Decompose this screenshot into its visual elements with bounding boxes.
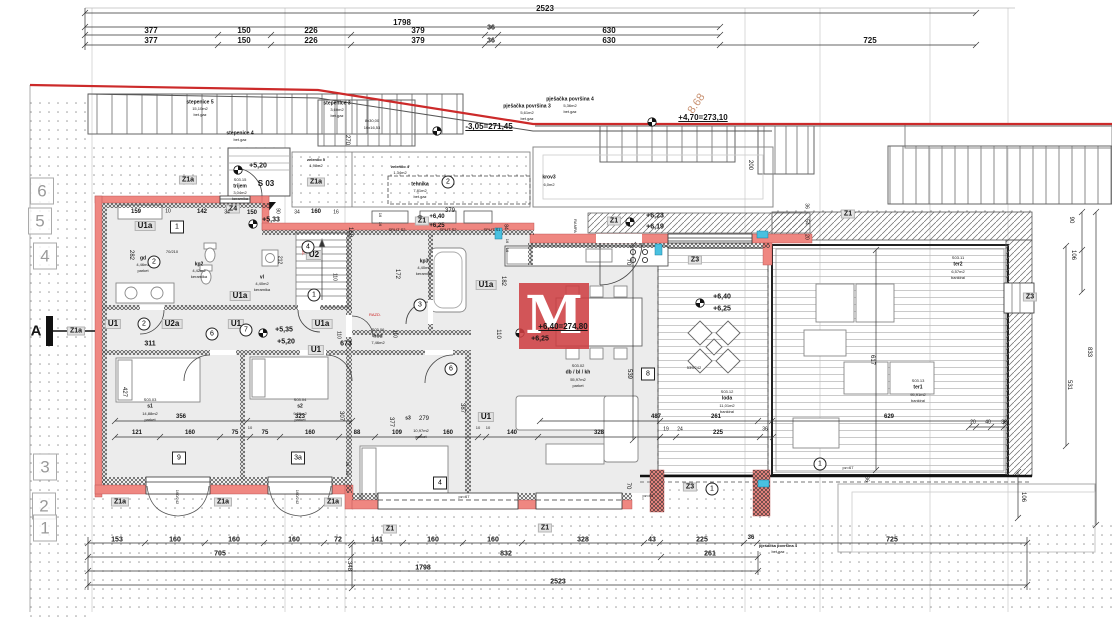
plan-label: keramika xyxy=(416,272,432,276)
plan-label: parket xyxy=(572,384,583,388)
plan-label: bet.gaz xyxy=(413,195,426,199)
plan-label: bet.gaz xyxy=(520,117,533,121)
plan-label: 725 xyxy=(886,537,898,544)
plan-label: 160 xyxy=(288,537,300,544)
reference-bubble: 2 xyxy=(148,256,161,269)
plan-label: RAZD. xyxy=(369,313,381,317)
plan-label: U2a xyxy=(162,319,183,329)
plan-label: U1 xyxy=(308,345,324,355)
plan-label: 140 xyxy=(507,430,517,436)
plan-label: bet.gaz xyxy=(330,114,343,118)
plan-label: 200 xyxy=(747,160,753,170)
reference-bubble: 1 xyxy=(308,289,321,302)
plan-label: zelenilo 4 xyxy=(391,165,409,169)
level-label: -3,05=271,45 xyxy=(465,123,512,131)
plan-label: 630 xyxy=(602,27,615,35)
plan-label: 36 xyxy=(748,535,755,541)
plan-label: 270 xyxy=(344,135,350,145)
plan-label: 153 xyxy=(111,537,123,544)
plan-label: Z1a xyxy=(179,176,197,185)
plan-label: 705 xyxy=(214,551,226,558)
plan-label: 4,42m2 xyxy=(192,269,205,273)
plan-label: +6,25 xyxy=(713,306,731,313)
plan-label: S03.06 xyxy=(372,328,385,332)
plan-label: 110 xyxy=(332,273,337,281)
plan-label: stepenice 4 xyxy=(226,132,253,137)
reference-bubble: 7 xyxy=(240,324,253,337)
plan-label: 311 xyxy=(144,341,155,348)
reference-bubble: 4 xyxy=(302,241,315,254)
plan-label: 225 xyxy=(696,537,708,544)
plan-label: 356 xyxy=(176,414,186,420)
plan-label: 110 xyxy=(336,331,341,339)
plan-label: U1a xyxy=(230,291,251,301)
reference-bubble: 6 xyxy=(445,363,458,376)
plan-label: 328 xyxy=(577,537,589,544)
plan-label: 6,57m2 xyxy=(951,270,964,274)
grid-axis-mark: 3 xyxy=(33,454,57,481)
plan-label: 226 xyxy=(304,27,317,35)
plan-label: 225 xyxy=(713,430,723,436)
plan-label: 106 xyxy=(1070,250,1076,260)
plan-label: 160 xyxy=(228,537,240,544)
plan-number: S 03 xyxy=(258,180,274,188)
plan-label: 110 xyxy=(495,329,501,339)
plan-label: 3,60m2 xyxy=(330,108,343,112)
plan-label: gd xyxy=(140,257,146,262)
plan-label: Z1a xyxy=(67,327,85,336)
plan-label: 617 xyxy=(869,355,875,365)
plan-label: 34 xyxy=(294,211,300,216)
plan-label: 487 xyxy=(651,414,661,420)
plan-label: 36 xyxy=(864,476,869,482)
plan-label: Z1 xyxy=(538,524,552,533)
plan-label: 261 xyxy=(711,414,721,420)
plan-label: pz=67 xyxy=(642,494,653,498)
reference-bubble: 6 xyxy=(206,328,219,341)
plan-label: 106 xyxy=(1020,492,1026,502)
plan-label: +6,25 xyxy=(531,336,549,343)
plan-label: 15,10m2 xyxy=(192,107,208,111)
plan-label: pješačka površina 3 xyxy=(503,105,551,110)
plan-label: 8x30,00 xyxy=(365,119,379,123)
plan-label: 10,97m2 xyxy=(413,429,429,433)
plan-label: S03.11 xyxy=(952,256,964,260)
plan-label: +5,33 xyxy=(262,217,280,224)
plan-label: Z1a xyxy=(324,498,342,507)
plan-label: 54 xyxy=(804,219,809,225)
plan-label: bet.gaz xyxy=(193,113,206,117)
plan-label: 160/242 xyxy=(175,490,179,504)
grid-axis-mark: 6 xyxy=(30,178,54,205)
plan-label: ter2 xyxy=(953,263,962,268)
plan-label: bankirai xyxy=(951,276,965,280)
plan-label: 160 xyxy=(443,430,453,436)
plan-label: +5,35 xyxy=(275,327,293,334)
plan-label: S03.13 xyxy=(912,379,925,383)
plan-label: 673 xyxy=(340,341,352,348)
plan-label: kp2 xyxy=(195,263,204,268)
plan-label: parket xyxy=(415,435,426,439)
plan-label: S03.04 xyxy=(294,398,307,402)
plan-label: 20 xyxy=(970,421,976,426)
element-tag: 3a xyxy=(291,452,305,465)
plan-label: SPLIT S1 xyxy=(483,228,500,232)
element-tag: 4 xyxy=(433,477,447,490)
grid-axis-mark: 1 xyxy=(33,515,57,542)
plan-label: 282 xyxy=(128,250,134,260)
plan-label: 70 xyxy=(625,483,631,490)
plan-label: 377 xyxy=(144,37,157,45)
plan-label: 307 xyxy=(338,411,344,421)
plan-label: 36 xyxy=(487,38,495,45)
plan-label: 34 xyxy=(224,211,230,216)
plan-label: 160/242 xyxy=(295,490,299,504)
plan-label: 20 xyxy=(804,234,809,240)
plan-label: S03.15 xyxy=(234,178,247,182)
plan-label: s2 xyxy=(297,405,303,410)
plan-label: 121 xyxy=(132,430,142,436)
plan-label: bankirai xyxy=(911,399,925,403)
plan-label: 212 xyxy=(277,256,282,264)
plan-label: 160 xyxy=(487,537,499,544)
element-tag: 8 xyxy=(641,368,655,381)
plan-label: 160 xyxy=(427,537,439,544)
plan-label: pješačka površina 4 xyxy=(759,544,797,548)
plan-label: 3,04m2 xyxy=(233,191,246,195)
plan-label: 2523 xyxy=(550,579,566,586)
plan-label: bet.gaz xyxy=(233,138,246,142)
plan-label: 36 xyxy=(762,428,768,433)
plan-label: 36 xyxy=(804,203,809,209)
plan-label: 150 xyxy=(247,210,257,216)
plan-label: U1a xyxy=(312,319,333,329)
plan-label: RAMPA xyxy=(573,219,577,233)
plan-label: pješačka površina 4 xyxy=(546,98,594,103)
plan-label: 141 xyxy=(371,537,383,544)
reference-bubble: 1 xyxy=(706,483,719,496)
level-label: +4,70=273,10 xyxy=(678,114,727,122)
plan-label: 36 xyxy=(1001,421,1007,426)
plan-label: 5,36m2 xyxy=(563,104,576,108)
plan-label: vl xyxy=(260,276,264,281)
plan-label: 182 xyxy=(500,276,506,286)
plan-label: SPLIT S2 xyxy=(439,228,456,232)
plan-label: 159 xyxy=(131,209,141,215)
plan-label: trijem xyxy=(233,185,247,190)
plan-label: +6,40 xyxy=(713,294,731,301)
floorplan-canvas: M 25231798377150226379366303771502263793… xyxy=(0,0,1112,638)
plan-label: Z3 xyxy=(1023,293,1037,302)
plan-label: loda xyxy=(722,397,732,402)
plan-label: Z1a xyxy=(111,498,129,507)
plan-label: 14,88m2 xyxy=(142,412,158,416)
grid-axis-mark: 5 xyxy=(28,208,52,235)
plan-label: parket xyxy=(137,269,148,273)
plan-label: 377 xyxy=(144,27,157,35)
plan-label: 379 xyxy=(445,208,455,214)
plan-label: Z1 xyxy=(415,217,429,226)
plan-label: 630 xyxy=(602,37,615,45)
plan-label: 90 xyxy=(1068,217,1074,224)
plan-label: 10 xyxy=(248,426,252,430)
plan-label: U1 xyxy=(105,319,121,329)
plan-label: 55,97m2 xyxy=(570,378,586,382)
plan-label: 16 xyxy=(345,471,349,475)
plan-label: 16 xyxy=(378,222,382,226)
plan-label: Z3 xyxy=(688,256,702,265)
plan-label: 261 xyxy=(704,551,716,558)
plan-label: 10 xyxy=(165,210,171,215)
plan-label: Z1 xyxy=(383,525,397,534)
plan-label: 160 xyxy=(185,430,195,436)
plan-label: Z3 xyxy=(683,483,697,492)
plan-label: bet.gaz xyxy=(771,550,784,554)
plan-label: keramika xyxy=(254,288,270,292)
plan-label: 90 xyxy=(275,208,280,214)
plan-label: stepenice 3 xyxy=(323,102,350,107)
element-tag: 9 xyxy=(172,452,186,465)
plan-label: Z1a xyxy=(307,178,325,187)
plan-label: 11,01m2 xyxy=(719,404,734,408)
plan-label: 16 xyxy=(505,239,509,243)
plan-label: 36 xyxy=(487,25,495,32)
reference-bubble: 1 xyxy=(814,458,827,471)
plan-label: bet.gaz xyxy=(563,110,576,114)
plan-label: 387 xyxy=(459,403,465,413)
plan-label: 160 xyxy=(347,227,353,237)
plan-label: 10x16,53 xyxy=(364,126,380,130)
plan-label: 110 xyxy=(392,330,397,338)
plan-label: 1798 xyxy=(415,565,431,572)
plan-label: 629 xyxy=(884,414,894,420)
element-tag: 1 xyxy=(170,221,184,234)
level-label: +6,40=274,80 xyxy=(538,323,587,331)
plan-label: 832 xyxy=(500,551,512,558)
plan-label: 379 xyxy=(411,27,424,35)
plan-label: 4,40m2 xyxy=(255,282,268,286)
plan-label: 1,98m2 xyxy=(309,164,322,168)
plan-label: 226 xyxy=(304,37,317,45)
plan-label: 10 xyxy=(486,426,490,430)
plan-label: U1 xyxy=(478,412,494,422)
plan-label: Z1 xyxy=(841,210,855,219)
reference-bubble: 2 xyxy=(442,176,455,189)
plan-label: SPLIT S2 xyxy=(388,228,405,232)
plan-label: 150 xyxy=(237,37,250,45)
plan-label: parket xyxy=(144,418,155,422)
plan-label: krov3 xyxy=(542,176,555,181)
plan-label: 531 xyxy=(1066,380,1072,390)
plan-label: 7,46m2 xyxy=(371,341,384,345)
plan-label: kp3 xyxy=(420,260,429,265)
annotation-layer: 2523179837715022637936630377150226379366… xyxy=(0,0,1112,638)
plan-label: ter1 xyxy=(913,386,922,391)
plan-label: 24 xyxy=(677,428,683,433)
plan-label: 379 xyxy=(411,37,424,45)
plan-label: 16 xyxy=(378,213,382,217)
plan-label: keramika xyxy=(232,197,248,201)
plan-label: 75 xyxy=(262,430,269,436)
plan-label: 10 xyxy=(476,426,480,430)
plan-label: 160 xyxy=(169,537,181,544)
reference-bubble: 2 xyxy=(138,318,151,331)
plan-label: 9,50m2 xyxy=(293,412,306,416)
plan-label: 4,40m2 xyxy=(417,266,430,270)
plan-label: 328 xyxy=(594,430,604,436)
plan-label: 279 xyxy=(419,416,429,422)
plan-label: pz=67 xyxy=(842,466,853,470)
plan-label: U1a xyxy=(476,280,497,290)
plan-label: 40 xyxy=(985,421,991,426)
plan-label: 539/242 xyxy=(687,366,701,370)
plan-label: 43 xyxy=(648,537,656,544)
plan-label: 2523 xyxy=(536,5,554,13)
plan-label: 6,0m2 xyxy=(543,183,554,187)
plan-label: 142 xyxy=(197,209,207,215)
grid-axis-mark: 4 xyxy=(33,243,57,270)
plan-label: 5,61m2 xyxy=(520,111,533,115)
plan-label: stepenice 5 xyxy=(186,101,213,106)
plan-label: 16 xyxy=(333,211,339,216)
plan-label: 84 xyxy=(503,224,508,230)
plan-label: 88 xyxy=(354,430,361,436)
plan-label: 16 xyxy=(345,462,349,466)
plan-label: 160 xyxy=(305,430,315,436)
plan-label: 833 xyxy=(1086,347,1092,357)
plan-label: pz=67 xyxy=(458,495,469,499)
plan-label: Z1a xyxy=(214,498,232,507)
plan-label: 160 xyxy=(311,209,321,215)
plan-label: Z1 xyxy=(607,217,621,226)
plan-label: 725 xyxy=(863,37,876,45)
plan-label: S03.02 xyxy=(572,364,585,368)
plan-label: bankirai xyxy=(720,410,734,414)
plan-label: parket xyxy=(294,418,305,422)
plan-label: 16 xyxy=(505,248,509,252)
plan-label: 348 xyxy=(346,561,352,571)
plan-label: 539 xyxy=(626,369,632,379)
plan-label: db / bl / kh xyxy=(566,371,591,376)
plan-label: hod xyxy=(373,335,382,340)
plan-label: 427 xyxy=(121,387,127,397)
plan-label: 1798 xyxy=(393,19,411,27)
plan-label: 95,91m2 xyxy=(910,393,926,397)
plan-label: 1,34m2 xyxy=(393,171,406,175)
plan-label: s3 xyxy=(405,417,411,422)
section-marker: A xyxy=(31,324,42,339)
plan-label: 109 xyxy=(392,430,402,436)
plan-label: S03.03 xyxy=(144,398,157,402)
plan-label: 75 xyxy=(232,430,239,436)
plan-label: 19 xyxy=(663,428,669,433)
plan-label: U1a xyxy=(135,221,156,231)
plan-label: tehnika xyxy=(411,183,429,188)
plan-label: 377 xyxy=(388,417,394,427)
plan-label: 70 xyxy=(625,259,631,266)
plan-label: 7,81m2 xyxy=(413,189,426,193)
plan-label: +5,20 xyxy=(277,339,295,346)
plan-label: +6,23 xyxy=(646,213,664,220)
plan-label: 70/210 xyxy=(166,250,178,254)
plan-label: keramika xyxy=(191,275,207,279)
plan-label: +6,19 xyxy=(646,224,664,231)
reference-bubble: 3 xyxy=(414,299,427,312)
plan-label: zelenilo 5 xyxy=(307,158,325,162)
plan-label: 172 xyxy=(394,269,400,279)
plan-label: +5,20 xyxy=(249,163,267,170)
plan-label: 150 xyxy=(237,27,250,35)
plan-label: +6,40 xyxy=(429,214,444,220)
plan-label: 72 xyxy=(334,537,342,544)
plan-label: s1 xyxy=(147,405,153,410)
plan-label: S03.12 xyxy=(721,390,734,394)
